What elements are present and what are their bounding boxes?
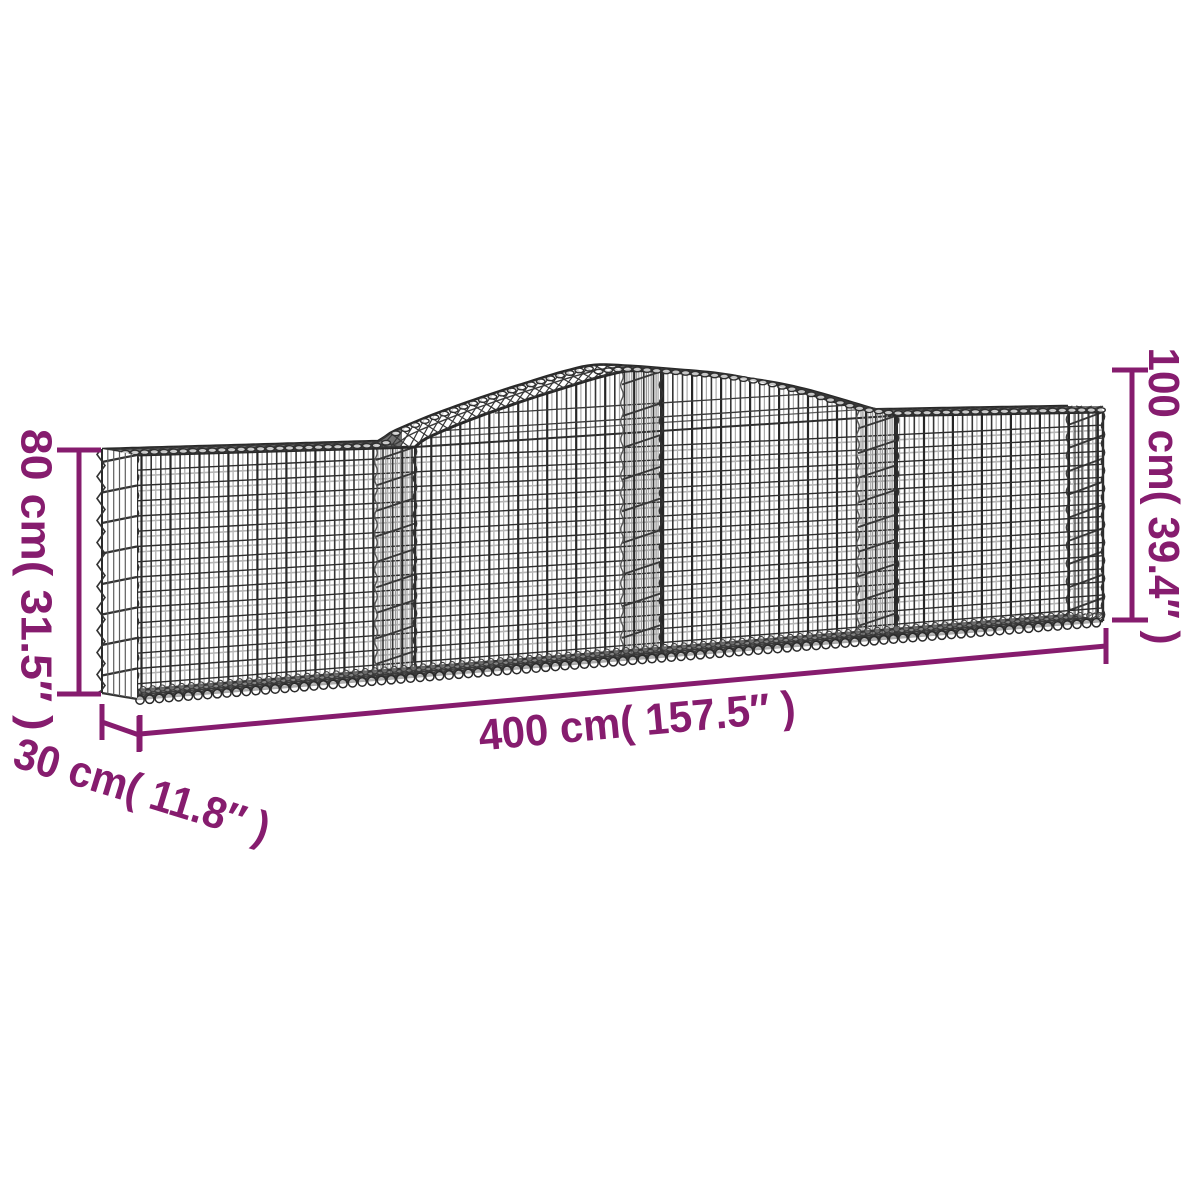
svg-text:100 cm( 39.4″ ): 100 cm( 39.4″ ) bbox=[1139, 348, 1188, 645]
svg-text:80 cm( 31.5″ ): 80 cm( 31.5″ ) bbox=[12, 429, 61, 731]
